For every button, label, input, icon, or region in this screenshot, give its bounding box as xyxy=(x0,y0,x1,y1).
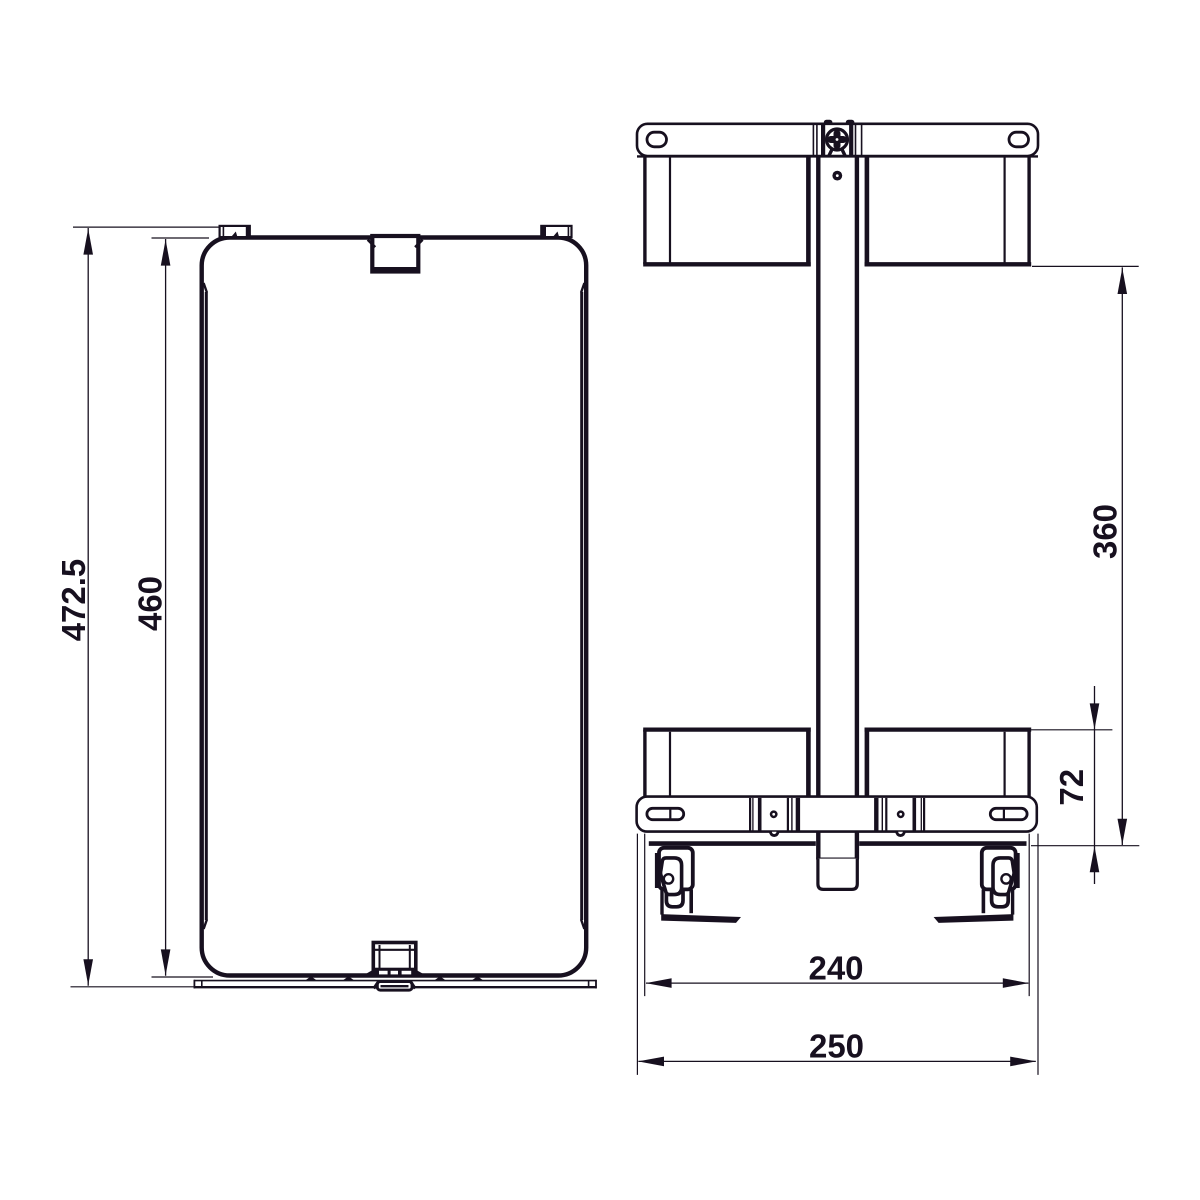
svg-text:460: 460 xyxy=(132,576,169,631)
svg-text:360: 360 xyxy=(1087,504,1124,559)
svg-text:72: 72 xyxy=(1053,769,1090,806)
svg-text:472.5: 472.5 xyxy=(55,559,92,642)
svg-text:240: 240 xyxy=(808,950,863,987)
svg-text:250: 250 xyxy=(809,1028,864,1065)
